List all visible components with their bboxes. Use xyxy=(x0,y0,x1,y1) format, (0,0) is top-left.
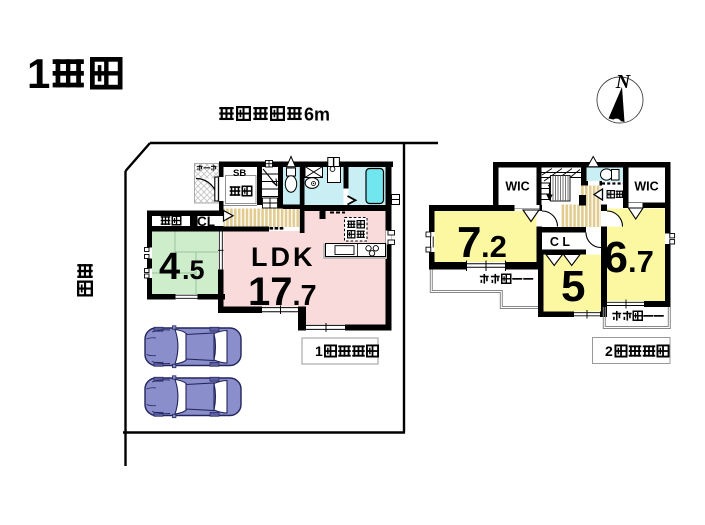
svg-text:.7: .7 xyxy=(628,244,654,279)
svg-text:6: 6 xyxy=(604,233,628,282)
svg-text:.7: .7 xyxy=(293,280,317,312)
svg-text:1: 1 xyxy=(27,50,50,97)
svg-text:1: 1 xyxy=(315,343,323,359)
svg-text:C L: C L xyxy=(550,235,571,249)
svg-text:WIC: WIC xyxy=(634,180,658,194)
svg-text:SB: SB xyxy=(233,168,246,179)
svg-text:7: 7 xyxy=(457,218,481,267)
svg-text:.2: .2 xyxy=(481,229,507,264)
svg-text:5: 5 xyxy=(561,262,585,311)
svg-text:6m: 6m xyxy=(304,105,330,125)
svg-text:.5: .5 xyxy=(182,255,205,285)
svg-text:LDK: LDK xyxy=(251,242,316,272)
svg-text:4: 4 xyxy=(159,246,180,288)
svg-text:17: 17 xyxy=(248,270,293,314)
svg-text:N: N xyxy=(615,71,632,93)
svg-text:WIC: WIC xyxy=(505,180,529,194)
svg-text:2: 2 xyxy=(605,343,613,359)
svg-text:CL: CL xyxy=(197,214,215,229)
